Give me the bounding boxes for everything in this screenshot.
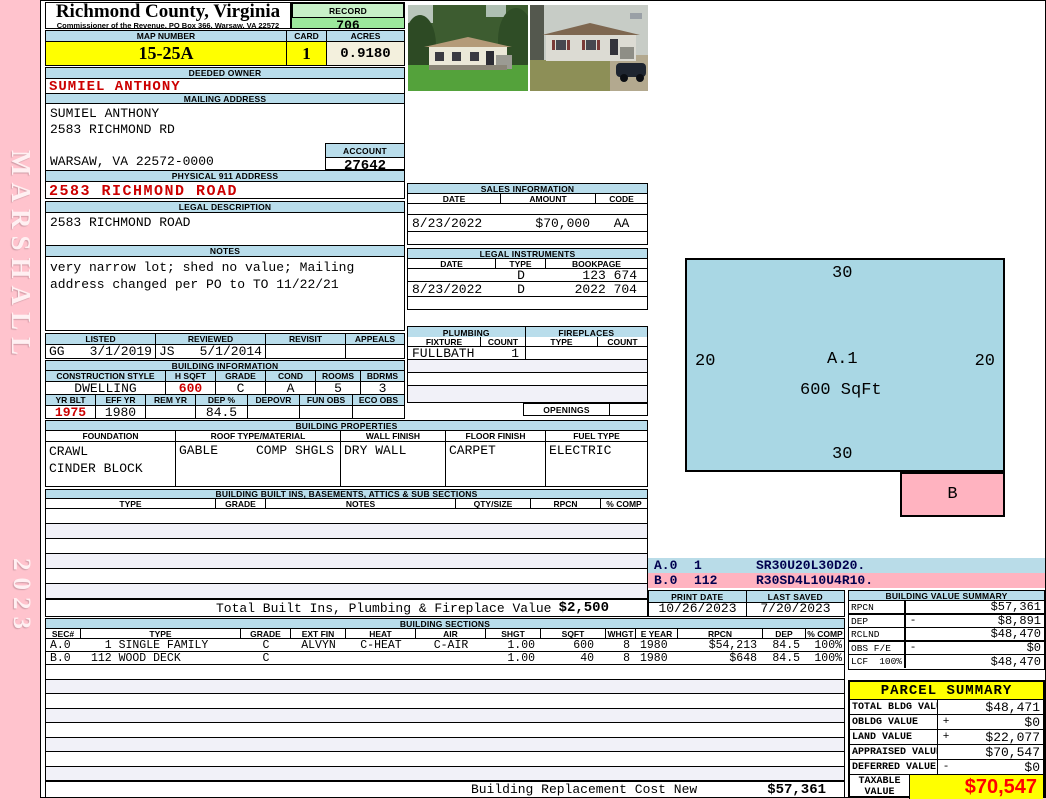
bvs-obs-label: OBS F/E xyxy=(849,642,906,654)
total-bldg-value: $48,471 xyxy=(954,700,1043,714)
bvs-row: OBS F/E - $0 xyxy=(849,642,1044,655)
empty-row xyxy=(46,723,844,738)
bs-b-shgt: 1.00 xyxy=(486,652,541,664)
plumbing-header-row: FIXTURE COUNT TYPE COUNT xyxy=(407,337,648,347)
bvs-rclnd-op xyxy=(906,628,920,640)
print-info-values: 10/26/2023 7/20/2023 xyxy=(648,601,845,617)
bs-air-label: AIR xyxy=(416,629,486,638)
bs-a-grade: C xyxy=(241,639,291,651)
empty-row xyxy=(46,524,647,539)
bi-qty-label: QTY/SIZE xyxy=(456,499,531,508)
sales-code-value: AA xyxy=(596,215,647,231)
parcel-summary-title: PARCEL SUMMARY xyxy=(850,682,1043,700)
bs-b-extfin xyxy=(291,652,346,664)
plumbing-count-value: 1 xyxy=(481,347,526,359)
bvs-obs-op: - xyxy=(906,642,920,654)
county-header: Richmond County, Virginia Commissioner o… xyxy=(45,2,291,29)
pf-empty-3 xyxy=(407,386,648,403)
building-sections-title: BUILDING SECTIONS xyxy=(45,618,845,629)
built-ins-header-row: TYPE GRADE NOTES QTY/SIZE RPCN % COMP xyxy=(45,499,648,509)
roof-label: ROOF TYPE/MATERIAL xyxy=(176,431,341,441)
parcel-row: DEFERRED VALUE - $0 xyxy=(850,760,1043,775)
wall-finish-value: DRY WALL xyxy=(341,442,446,486)
bs-a-air: C-AIR xyxy=(416,639,486,651)
mailing-line-1: SUMIEL ANTHONY xyxy=(50,106,404,122)
record-box: RECORD 706 xyxy=(291,2,405,29)
construction-style-label: CONSTRUCTION STYLE xyxy=(46,371,166,381)
total-bldg-op xyxy=(938,700,954,714)
replacement-cost-value: $57,361 xyxy=(767,782,826,798)
construction-style-value: DWELLING xyxy=(46,382,166,394)
bs-data-row-b: B.0 112 WOOD DECK C 1.00 40 8 1980 $648 … xyxy=(45,652,845,665)
bs-a-rpcn: $54,213 xyxy=(678,639,763,651)
deeded-owner-value: SUMIEL ANTHONY xyxy=(45,79,405,93)
bs-dep-label: DEP xyxy=(763,629,806,638)
foundation-value: CRAWL CINDER BLOCK xyxy=(46,442,176,486)
land-value-op: + xyxy=(938,730,954,744)
legal-header-row: DATE TYPE BOOKPAGE xyxy=(407,259,648,269)
roof-value: GABLE COMP SHGLS xyxy=(176,442,341,486)
bvs-lcf-op xyxy=(906,655,920,668)
sales-code-label: CODE xyxy=(596,194,647,203)
roof-material-value: COMP SHGLS xyxy=(256,443,334,458)
parcel-row: OBLDG VALUE + $0 xyxy=(850,715,1043,730)
vendor-watermark: MARSHALL xyxy=(5,150,36,362)
bs-a-sqft: 600 xyxy=(541,639,606,651)
bdrms-label: BDRMS xyxy=(361,371,404,381)
appeals-label: APPEALS xyxy=(346,334,404,344)
legal-row2-date: 8/23/2022 xyxy=(408,282,496,296)
bi-rpcn-label: RPCN xyxy=(531,499,601,508)
hsqft-value: 600 xyxy=(166,382,216,394)
bp-header-row: FOUNDATION ROOF TYPE/MATERIAL WALL FINIS… xyxy=(45,431,648,442)
land-value-label: LAND VALUE xyxy=(850,730,938,744)
commissioner-line: Commissioner of the Revenue, PO Box 366,… xyxy=(46,21,290,29)
bvs-lcf-label-cell: LCF 100% xyxy=(849,655,906,668)
pf-empty-1 xyxy=(407,360,648,373)
reviewed-by: JS xyxy=(159,345,175,358)
print-date-value: 10/26/2023 xyxy=(649,601,747,616)
floor-finish-value: CARPET xyxy=(446,442,546,486)
parcel-row: TOTAL BLDG VALUE $48,471 xyxy=(850,700,1043,715)
empty-row xyxy=(46,767,844,782)
bs-a-sec: A.0 xyxy=(46,639,81,651)
bs-b-grade: C xyxy=(241,652,291,664)
empty-row xyxy=(46,554,647,569)
bi-value-row-2: 1975 1980 84.5 xyxy=(45,406,405,419)
sketch-section-a-sqft: 600 SqFt xyxy=(800,381,882,400)
bs-header-row: SEC# TYPE GRADE EXT FIN HEAT AIR SHGT SQ… xyxy=(45,629,845,639)
card-value: 1 xyxy=(287,42,327,65)
bvs-rclnd-value: $48,470 xyxy=(920,628,1044,640)
bvs-row: RCLND $48,470 xyxy=(849,628,1044,642)
built-ins-total-label: Total Built Ins, Plumbing & Fireplace Va… xyxy=(216,601,551,616)
legal-bookpage-label: BOOKPAGE xyxy=(546,259,647,268)
sketch-code-b-path: R30SD4L10U4R10. xyxy=(756,573,873,588)
bs-extfin-label: EXT FIN xyxy=(291,629,346,638)
bs-grade-label: GRADE xyxy=(241,629,291,638)
taxable-label: TAXABLE VALUE xyxy=(850,775,910,799)
sketch-dim-right: 20 xyxy=(975,352,995,371)
year-watermark: 2023 xyxy=(7,558,35,636)
sketch-code-a: A.0 1 SR30U20L30D20. xyxy=(648,558,1045,573)
appraised-op xyxy=(938,745,954,759)
empty-row xyxy=(46,694,844,709)
sketch-section-b: B xyxy=(900,472,1005,517)
bi-value-row-1: DWELLING 600 C A 5 3 xyxy=(45,382,405,395)
ecoobs-value xyxy=(353,406,404,418)
empty-row xyxy=(46,509,647,524)
foundation-label: FOUNDATION xyxy=(46,431,176,441)
bi-type-label: TYPE xyxy=(46,499,216,508)
bvs-rpcn-value: $57,361 xyxy=(920,601,1044,613)
county-title: Richmond County, Virginia xyxy=(46,3,290,21)
built-ins-total-row: Total Built Ins, Plumbing & Fireplace Va… xyxy=(45,599,648,617)
fireplace-type-label: TYPE xyxy=(526,337,598,346)
bi-notes-label: NOTES xyxy=(266,499,456,508)
empty-row xyxy=(46,584,647,599)
last-saved-value: 7/20/2023 xyxy=(747,601,844,616)
bs-b-rpcn: $648 xyxy=(678,652,763,664)
taxable-value: $70,547 xyxy=(910,775,1043,799)
bs-empty-rows xyxy=(45,665,845,781)
sales-empty-row xyxy=(407,204,648,215)
listed-label: LISTED xyxy=(46,334,156,344)
sketch-code-b: B.0 112 R30SD4L10U4R10. xyxy=(648,573,1045,588)
yrblt-value: 1975 xyxy=(46,406,96,418)
built-ins-total-value: $2,500 xyxy=(559,600,609,616)
sketch-code-a-num: 1 xyxy=(694,558,756,573)
bvs-row: DEP - $8,891 xyxy=(849,615,1044,628)
floor-finish-label: FLOOR FINISH xyxy=(446,431,546,441)
building-properties-title: BUILDING PROPERTIES xyxy=(45,420,648,431)
legal-row-2: 8/23/2022 D 2022 704 xyxy=(407,282,648,297)
bvs-row: RPCN $57,361 xyxy=(849,601,1044,615)
obldg-op: + xyxy=(938,715,954,729)
mailing-line-2: 2583 RICHMOND RD xyxy=(50,122,404,138)
deferred-value: $0 xyxy=(954,760,1043,774)
bvs-dep-op: - xyxy=(906,615,920,627)
sales-header-row: DATE AMOUNT CODE xyxy=(407,194,648,204)
empty-row xyxy=(46,752,844,767)
legal-instruments-title: LEGAL INSTRUMENTS xyxy=(407,248,648,259)
listed-date: 3/1/2019 xyxy=(90,345,152,358)
bs-comp-label: % COMP xyxy=(806,629,844,638)
grade-label: GRADE xyxy=(216,371,266,381)
empty-row xyxy=(46,539,647,554)
effyr-label: EFF YR xyxy=(96,395,146,405)
sketch-dim-left: 20 xyxy=(695,352,715,371)
bs-b-dep: 84.5 xyxy=(763,652,806,664)
legal-row-1: D 123 674 xyxy=(407,269,648,282)
sketch-section-a-label: A.1 xyxy=(827,350,858,369)
map-number-label: MAP NUMBER xyxy=(45,30,287,42)
legal-row1-date xyxy=(408,269,496,281)
building-information-title: BUILDING INFORMATION xyxy=(45,360,405,371)
photo-house-front xyxy=(408,5,528,91)
bs-a-comp: 100% xyxy=(806,639,844,651)
record-label: RECORD xyxy=(292,3,404,18)
bs-b-whgt: 8 xyxy=(606,652,636,664)
bs-sqft-label: SQFT xyxy=(541,629,606,638)
empty-row xyxy=(46,680,844,695)
roof-type-value: GABLE xyxy=(179,443,218,458)
property-record-card: MARSHALL 2023 Richmond County, Virginia … xyxy=(0,0,1050,800)
sketch-code-a-path: SR30U20L30D20. xyxy=(756,558,865,573)
bs-shgt-label: SHGT xyxy=(486,629,541,638)
legal-type-label: TYPE xyxy=(496,259,546,268)
effyr-value: 1980 xyxy=(96,406,146,418)
legal-row1-bookpage: 123 674 xyxy=(546,269,647,281)
bvs-rpcn-label: RPCN xyxy=(849,601,906,613)
bs-a-extfin: ALVYN xyxy=(291,639,346,651)
bp-value-row: CRAWL CINDER BLOCK GABLE COMP SHGLS DRY … xyxy=(45,442,648,487)
sketch-code-a-sec: A.0 xyxy=(648,558,694,573)
revisit-label: REVISIT xyxy=(266,334,346,344)
map-value-row: 15-25A 1 0.9180 xyxy=(45,42,405,66)
sketch-section-b-label: B xyxy=(947,485,957,504)
parcel-summary: PARCEL SUMMARY TOTAL BLDG VALUE $48,471 … xyxy=(848,680,1045,798)
land-value: $22,077 xyxy=(954,730,1043,744)
obldg-value: $0 xyxy=(954,715,1043,729)
pf-empty-2 xyxy=(407,373,648,386)
photo-house-driveway xyxy=(530,5,648,91)
fixture-value: FULLBATH xyxy=(408,347,481,359)
bvs-row: LCF 100% $48,470 xyxy=(849,655,1044,668)
listed-value: GG3/1/2019 xyxy=(46,345,156,358)
remyr-value xyxy=(146,406,196,418)
fireplace-count-label: COUNT xyxy=(598,337,647,346)
bs-type-label: TYPE xyxy=(81,629,241,638)
notes-label: NOTES xyxy=(45,245,405,257)
appraised-value: $70,547 xyxy=(954,745,1043,759)
bs-a-whgt: 8 xyxy=(606,639,636,651)
sketch-dim-top: 30 xyxy=(832,264,852,283)
built-ins-empty-rows xyxy=(45,509,648,599)
built-ins-title: BUILDING BUILT INS, BASEMENTS, ATTICS & … xyxy=(45,489,648,499)
openings-label: OPENINGS xyxy=(523,403,610,416)
bs-b-heat xyxy=(346,652,416,664)
empty-row xyxy=(46,709,844,724)
legal-date-label: DATE xyxy=(408,259,496,268)
bs-b-sqft: 40 xyxy=(541,652,606,664)
bs-a-eyear: 1980 xyxy=(636,639,678,651)
yrblt-label: YR BLT xyxy=(46,395,96,405)
cond-label: COND xyxy=(266,371,316,381)
bs-eyear-label: E YEAR xyxy=(636,629,678,638)
replacement-cost-row: Building Replacement Cost New $57,361 xyxy=(45,781,845,798)
fireplace-row-empty xyxy=(526,347,647,359)
funobs-label: FUN OBS xyxy=(300,395,353,405)
notes-value: very narrow lot; shed no value; Mailing … xyxy=(45,257,405,331)
bvs-dep-value: $8,891 xyxy=(920,615,1044,627)
dep-label: DEP % xyxy=(196,395,248,405)
sketch-code-b-num: 112 xyxy=(694,573,756,588)
funobs-value xyxy=(300,406,353,418)
deferred-label: DEFERRED VALUE xyxy=(850,760,938,774)
record-value: 706 xyxy=(292,18,404,29)
depovr-value xyxy=(248,406,300,418)
bi-header-row-1: CONSTRUCTION STYLE H SQFT GRADE COND ROO… xyxy=(45,371,405,382)
bi-header-row-2: YR BLT EFF YR REM YR DEP % DEPOVR FUN OB… xyxy=(45,395,405,406)
bs-b-comp: 100% xyxy=(806,652,844,664)
listed-by: GG xyxy=(49,345,65,358)
legal-description-value: 2583 RICHMOND ROAD xyxy=(45,213,405,245)
appraised-label: APPRAISED VALUE xyxy=(850,745,938,759)
parcel-row: LAND VALUE + $22,077 xyxy=(850,730,1043,745)
account-value: 27642 xyxy=(326,158,404,170)
dep-value: 84.5 xyxy=(196,406,248,418)
replacement-cost-label: Building Replacement Cost New xyxy=(471,782,697,797)
account-box: ACCOUNT 27642 xyxy=(325,143,405,170)
foundation-line-2: CINDER BLOCK xyxy=(49,460,143,477)
bvs-dep-label: DEP xyxy=(849,615,906,627)
bs-a-heat: C-HEAT xyxy=(346,639,416,651)
bvs-lcf-pct: 100% xyxy=(879,656,902,667)
sales-amount-label: AMOUNT xyxy=(501,194,596,203)
bs-b-eyear: 1980 xyxy=(636,652,678,664)
deferred-op: - xyxy=(938,760,954,774)
bvs-rpcn-op xyxy=(906,601,920,613)
bs-b-sec: B.0 xyxy=(46,652,81,664)
map-number-value: 15-25A xyxy=(46,42,287,65)
remyr-label: REM YR xyxy=(146,395,196,405)
bvs-obs-value: $0 xyxy=(920,642,1044,654)
bvs-lcf-label: LCF xyxy=(851,656,868,667)
legal-description-label: LEGAL DESCRIPTION xyxy=(45,201,405,213)
deeded-owner-label: DEEDED OWNER xyxy=(45,67,405,79)
sales-date-label: DATE xyxy=(408,194,501,203)
bs-b-air xyxy=(416,652,486,664)
reviewed-date: 5/1/2014 xyxy=(200,345,262,358)
sales-amount-value: $70,000 xyxy=(501,215,596,231)
appeals-value xyxy=(346,345,404,358)
ecoobs-label: ECO OBS xyxy=(353,395,404,405)
bs-a-shgt: 1.00 xyxy=(486,639,541,651)
legal-row2-bookpage: 2022 704 xyxy=(546,282,647,296)
photo-house-front-image xyxy=(408,5,528,91)
print-info-headers: PRINT DATE LAST SAVED xyxy=(648,590,845,601)
acres-value: 0.9180 xyxy=(327,42,404,65)
total-bldg-label: TOTAL BLDG VALUE xyxy=(850,700,938,714)
sidebar: MARSHALL 2023 xyxy=(0,0,40,800)
physical-address-label: PHYSICAL 911 ADDRESS xyxy=(45,170,405,182)
legal-row2-type: D xyxy=(496,282,546,296)
card-label: CARD xyxy=(287,30,327,42)
photo-house-driveway-image xyxy=(530,5,648,91)
plumbing-count-label: COUNT xyxy=(481,337,526,346)
review-value-row: GG3/1/2019 JS5/1/2014 xyxy=(45,345,405,359)
bs-a-dep: 84.5 xyxy=(763,639,806,651)
sketch-dim-bottom: 30 xyxy=(832,445,852,464)
rooms-value: 5 xyxy=(316,382,361,394)
empty-row xyxy=(46,665,844,680)
cond-value: A xyxy=(266,382,316,394)
bvs-table: RPCN $57,361 DEP - $8,891 RCLND $48,470 … xyxy=(848,601,1045,670)
wall-finish-label: WALL FINISH xyxy=(341,431,446,441)
bs-heat-label: HEAT xyxy=(346,629,416,638)
acres-label: ACRES xyxy=(327,30,405,42)
sketch-code-b-sec: B.0 xyxy=(648,573,694,588)
bvs-title: BUILDING VALUE SUMMARY xyxy=(848,590,1045,601)
obldg-label: OBLDG VALUE xyxy=(850,715,938,729)
bs-sec-label: SEC# xyxy=(46,629,81,638)
bs-whgt-label: WHGT xyxy=(606,629,636,638)
depovr-label: DEPOVR xyxy=(248,395,300,405)
bi-grade-label: GRADE xyxy=(216,499,266,508)
rooms-label: ROOMS xyxy=(316,371,361,381)
map-header-row: MAP NUMBER CARD ACRES xyxy=(45,30,405,42)
physical-address-value: 2583 RICHMOND ROAD xyxy=(45,182,405,199)
foundation-line-1: CRAWL xyxy=(49,443,88,460)
bdrms-value: 3 xyxy=(361,382,404,394)
revisit-value xyxy=(266,345,346,358)
bs-data-row-a: A.0 1 SINGLE FAMILY C ALVYN C-HEAT C-AIR… xyxy=(45,639,845,652)
mailing-address-label: MAILING ADDRESS xyxy=(45,93,405,104)
bi-comp-label: % COMP xyxy=(601,499,647,508)
fuel-type-label: FUEL TYPE xyxy=(546,431,647,441)
grade-value: C xyxy=(216,382,266,394)
hsqft-label: H SQFT xyxy=(166,371,216,381)
legal-row1-type: D xyxy=(496,269,546,281)
parcel-row: APPRAISED VALUE $70,547 xyxy=(850,745,1043,760)
bvs-lcf-value: $48,470 xyxy=(920,655,1044,668)
sales-information-title: SALES INFORMATION xyxy=(407,183,648,194)
sales-date-value: 8/23/2022 xyxy=(408,215,501,231)
reviewed-label: REVIEWED xyxy=(156,334,266,344)
plumbing-data-row: FULLBATH 1 xyxy=(407,347,648,360)
openings-value-box xyxy=(610,403,648,416)
account-label: ACCOUNT xyxy=(326,144,404,158)
taxable-row: TAXABLE VALUE $70,547 xyxy=(850,775,1043,799)
fixture-label: FIXTURE xyxy=(408,337,481,346)
plumbing-fireplaces-titles: PLUMBING FIREPLACES xyxy=(407,326,648,337)
empty-row xyxy=(46,738,844,753)
fuel-type-value: ELECTRIC xyxy=(546,442,647,486)
empty-row xyxy=(46,569,647,584)
sketch-section-a: 30 20 A.1 20 600 SqFt 30 xyxy=(685,258,1005,472)
bvs-rclnd-label: RCLND xyxy=(849,628,906,640)
review-header-row: LISTED REVIEWED REVISIT APPEALS xyxy=(45,333,405,345)
reviewed-value: JS5/1/2014 xyxy=(156,345,266,358)
bs-rpcn-label: RPCN xyxy=(678,629,763,638)
bs-b-type: 112 WOOD DECK xyxy=(81,652,241,664)
sales-empty-row-2 xyxy=(407,232,648,245)
legal-empty-row xyxy=(407,297,648,310)
bs-a-type: 1 SINGLE FAMILY xyxy=(81,639,241,651)
sales-data-row: 8/23/2022 $70,000 AA xyxy=(407,215,648,232)
